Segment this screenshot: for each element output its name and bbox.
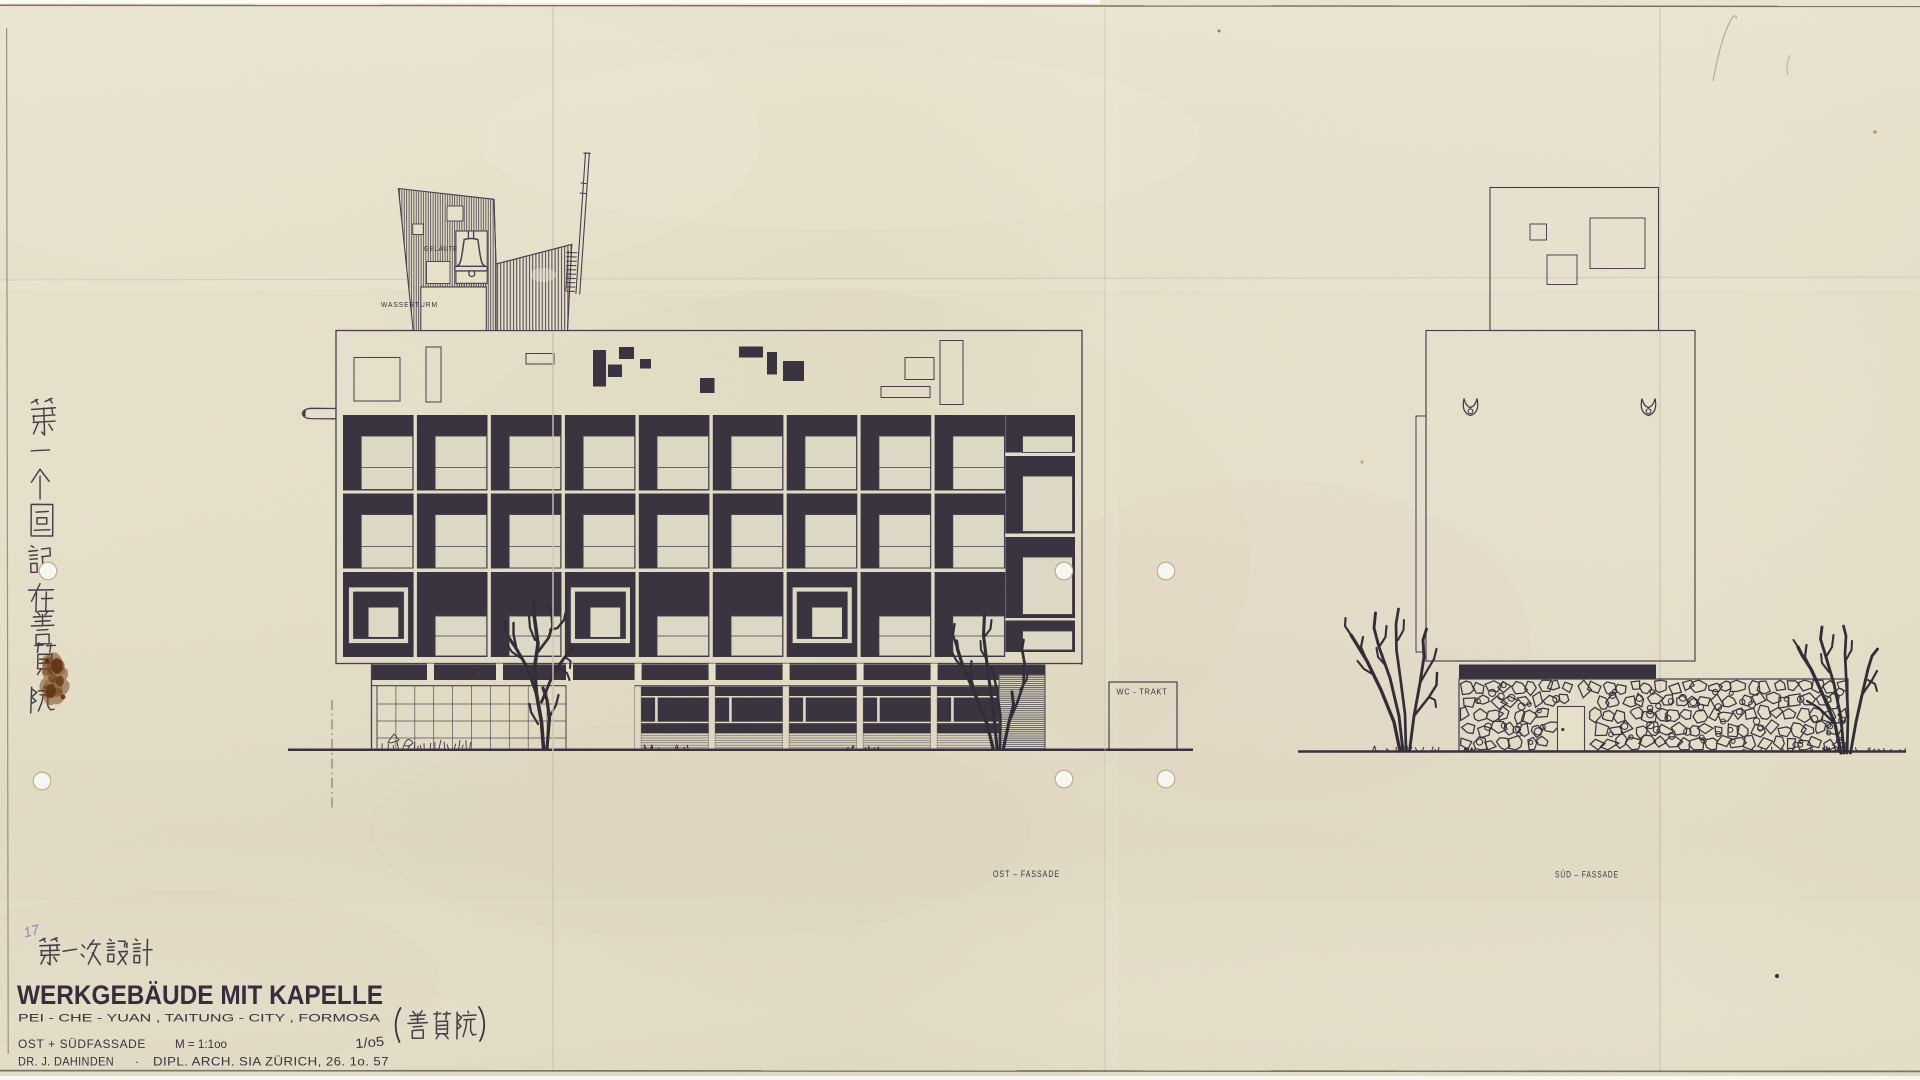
svg-text:PEI - CHE - YUAN , TAITUNG -: PEI - CHE - YUAN , TAITUNG - CITY , FORM… xyxy=(18,1013,381,1025)
svg-text:WASSERTURM: WASSERTURM xyxy=(381,300,438,309)
svg-text:DR. J. DAHINDEN: DR. J. DAHINDEN xyxy=(18,1055,114,1069)
svg-text:DIPL. ARCH. SIA ZÜRICH, 26. 1: DIPL. ARCH. SIA ZÜRICH, 26. 1o. 57 xyxy=(153,1055,389,1069)
svg-text:OST + SÜDFASSADE: OST + SÜDFASSADE xyxy=(18,1037,146,1051)
svg-text:WERKGEBÄUDE MIT KAPELLE: WERKGEBÄUDE MIT KAPELLE xyxy=(17,980,383,1010)
svg-text:SÜD – FASSADE: SÜD – FASSADE xyxy=(1555,870,1619,880)
svg-text:WC - TRAKT: WC - TRAKT xyxy=(1117,688,1168,697)
svg-text:M = 1:1oo: M = 1:1oo xyxy=(175,1037,227,1051)
svg-text:GELÄUTE: GELÄUTE xyxy=(424,244,458,253)
svg-text:·: · xyxy=(135,1055,139,1069)
svg-text:OST – FASSADE: OST – FASSADE xyxy=(993,869,1060,879)
svg-text:1/o5: 1/o5 xyxy=(355,1034,385,1051)
